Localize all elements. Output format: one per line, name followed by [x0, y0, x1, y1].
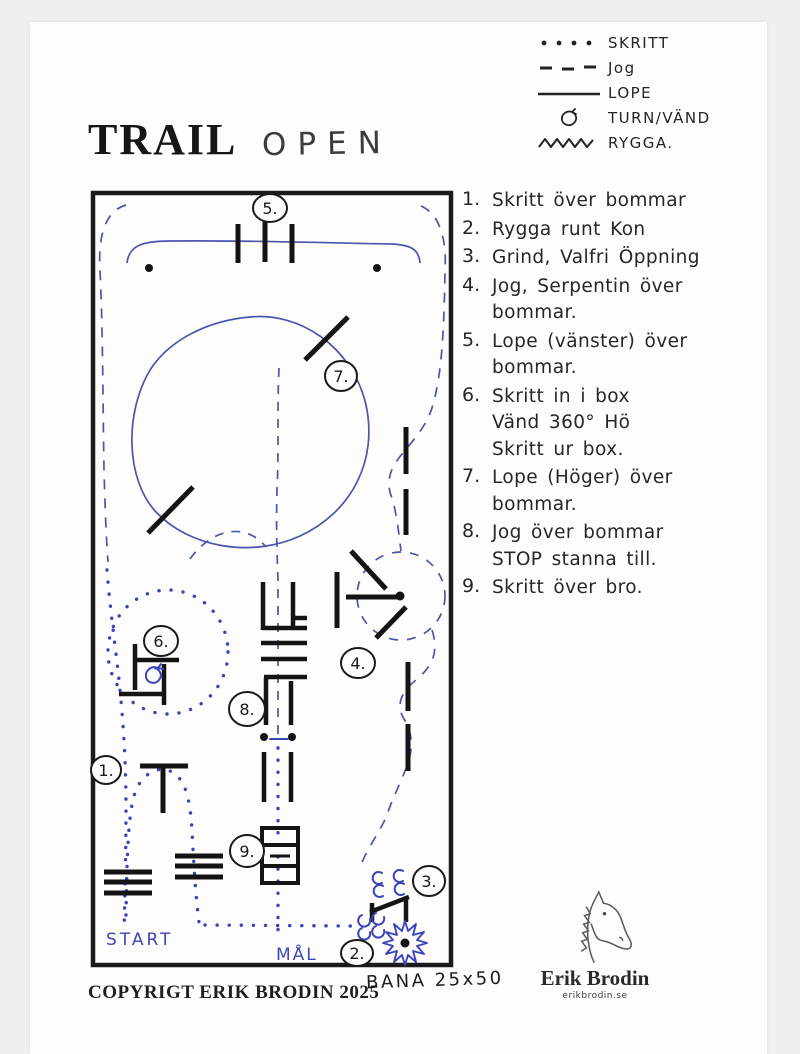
- item-text: Skritt över bro.: [492, 575, 752, 602]
- obstacle-label-5: 5.: [262, 199, 277, 218]
- start-label: START: [106, 930, 173, 950]
- obstacle-labels: 5. 7. 4. 6. 8. 1. 9. 3. 2.: [91, 194, 445, 966]
- skritt-left-line: [107, 570, 126, 930]
- item-text: Jog över bommar STOP stanna till.: [492, 520, 752, 573]
- obstacle-1-poles: [104, 766, 223, 893]
- legend-label: LOPE: [608, 84, 652, 102]
- jog-arc-inside-circle: [190, 531, 266, 559]
- obstacle-7-poles: [148, 317, 348, 533]
- page-title: TRAIL: [88, 114, 237, 165]
- obstacle-3-gate: [370, 897, 409, 922]
- list-item: 6.Skritt in i box Vänd 360° Hö Skritt ur…: [462, 384, 752, 464]
- jog-path-left: [100, 205, 126, 562]
- goal-label: MÅL: [276, 943, 318, 965]
- page-subtitle: OPEN: [262, 125, 392, 163]
- item-text: Skritt in i box Vänd 360° Hö Skritt ur b…: [492, 384, 752, 464]
- turn-icon: [146, 664, 163, 683]
- path-lines: [100, 205, 446, 870]
- list-item: 8.Jog över bommar STOP stanna till.: [462, 520, 752, 573]
- obstacle-label-1: 1.: [98, 761, 113, 780]
- obstacle-9-bridge: [262, 828, 298, 883]
- cone-dot: [401, 939, 410, 948]
- list-item: 1.Skritt över bommar: [462, 188, 752, 215]
- dotted-line-icon: [530, 36, 608, 50]
- list-item: 7.Lope (Höger) över bommar.: [462, 465, 752, 518]
- scanned-page: TRAIL OPEN SKRITT Jog LOPE: [30, 22, 767, 1054]
- item-number: 7.: [462, 465, 492, 518]
- zigzag-line-icon: [530, 135, 608, 151]
- copyright-text: COPYRIGT ERIK BRODIN 2025: [88, 982, 379, 1004]
- legend-row-skritt: SKRITT: [530, 30, 760, 55]
- erik-brodin-logo: Erik Brodin erikbrodin.se: [535, 890, 655, 1001]
- legend-label: SKRITT: [608, 34, 669, 52]
- horse-head-icon: [549, 890, 641, 966]
- item-number: 3.: [462, 245, 492, 272]
- course-map: 5. 7. 4. 6. 8. 1. 9. 3. 2. START MÅL: [88, 188, 462, 978]
- obstacle-label-3: 3.: [421, 872, 436, 891]
- solid-line-icon: [530, 86, 608, 100]
- list-item: 4.Jog, Serpentin över bommar.: [462, 274, 752, 327]
- item-number: 1.: [462, 188, 492, 215]
- legend-label: TURN/VÄND: [608, 109, 711, 127]
- blue-marks: [146, 664, 427, 965]
- item-number: 9.: [462, 575, 492, 602]
- item-text: Grind, Valfri Öppning: [492, 245, 752, 272]
- lope-line-top: [127, 241, 420, 263]
- turn-icon: [530, 108, 608, 128]
- arena-border: [93, 193, 451, 965]
- jog-path-center: [277, 368, 279, 735]
- obstacle-label-2: 2.: [349, 944, 364, 963]
- list-item: 9.Skritt över bro.: [462, 575, 752, 602]
- item-text: Lope (Höger) över bommar.: [492, 465, 752, 518]
- obstacle-label-6: 6.: [153, 632, 168, 651]
- item-number: 5.: [462, 329, 492, 382]
- legend-row-turn: TURN/VÄND: [530, 105, 760, 130]
- dashed-line-icon: [530, 61, 608, 75]
- legend: SKRITT Jog LOPE TURN/VÄND RYGGA.: [530, 30, 760, 155]
- item-number: 6.: [462, 384, 492, 464]
- list-item: 2.Rygga runt Kon: [462, 217, 752, 244]
- obstacle-label-4: 4.: [350, 654, 365, 673]
- list-item: 3.Grind, Valfri Öppning: [462, 245, 752, 272]
- item-number: 8.: [462, 520, 492, 573]
- legend-label: RYGGA.: [608, 134, 674, 152]
- legend-row-rygga: RYGGA.: [530, 130, 760, 155]
- item-text: Rygga runt Kon: [492, 217, 752, 244]
- obstacle-8-chute: [261, 582, 307, 802]
- legend-row-lope: LOPE: [530, 80, 760, 105]
- legend-row-jog: Jog: [530, 55, 760, 80]
- logo-name: Erik Brodin: [535, 966, 655, 991]
- instruction-list: 1.Skritt över bommar 2.Rygga runt Kon 3.…: [462, 188, 752, 604]
- list-item: 5.Lope (vänster) över bommar.: [462, 329, 752, 382]
- obstacle-label-8: 8.: [239, 700, 254, 719]
- item-text: Jog, Serpentin över bommar.: [492, 274, 752, 327]
- obstacle-label-9: 9.: [239, 842, 254, 861]
- item-text: Skritt över bommar: [492, 188, 752, 215]
- logo-site: erikbrodin.se: [535, 991, 655, 1001]
- item-text: Lope (vänster) över bommar.: [492, 329, 752, 382]
- skritt-bottom-line: [205, 925, 352, 926]
- item-number: 4.: [462, 274, 492, 327]
- item-number: 2.: [462, 217, 492, 244]
- fan-center-dot: [396, 592, 405, 601]
- obstacle-label-7: 7.: [333, 367, 348, 386]
- jog-path-right: [389, 206, 445, 551]
- legend-label: Jog: [608, 59, 636, 77]
